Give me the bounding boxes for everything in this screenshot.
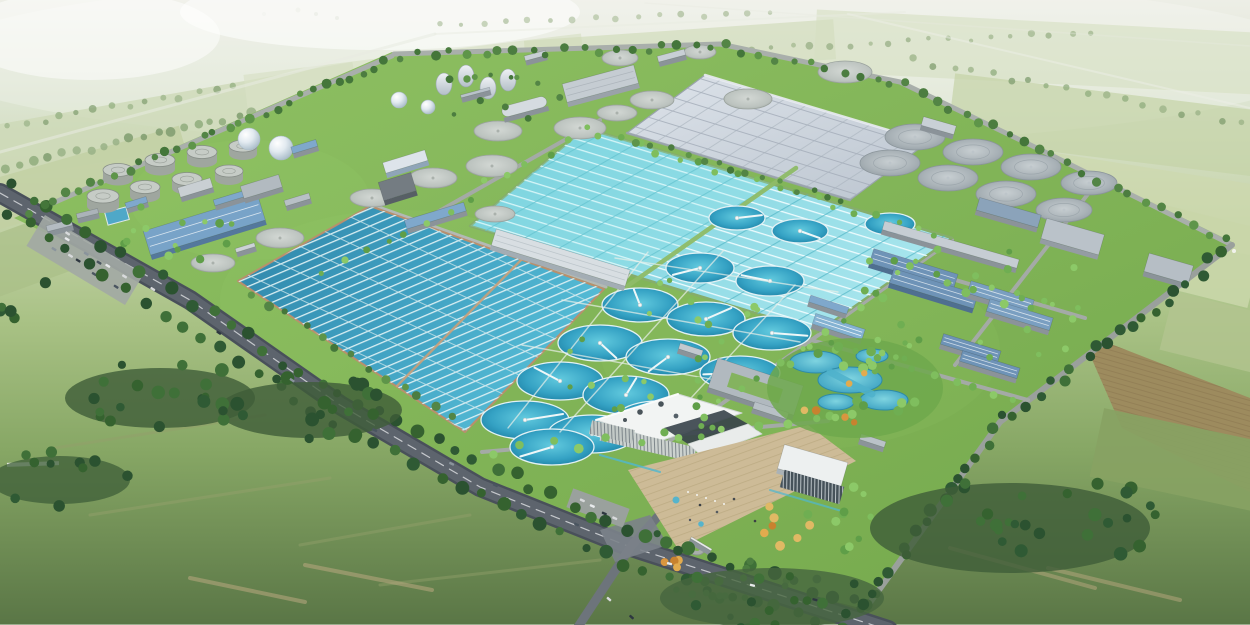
tree — [164, 252, 172, 260]
tree — [857, 304, 865, 312]
tree — [711, 169, 718, 176]
tree — [118, 361, 126, 369]
tree — [856, 536, 862, 542]
tree — [544, 486, 557, 499]
tree — [548, 18, 553, 23]
tree — [431, 402, 440, 411]
tree — [1120, 486, 1132, 498]
tree — [135, 158, 142, 165]
roof-vents — [637, 409, 643, 415]
tree — [723, 11, 729, 17]
tree — [960, 478, 971, 489]
tree — [1004, 265, 1012, 273]
tree — [387, 239, 392, 244]
tree — [455, 481, 469, 495]
tree — [1020, 402, 1030, 412]
tree — [660, 428, 668, 436]
covered-tank-center — [889, 162, 892, 165]
tree — [1035, 145, 1045, 155]
distant-buildings — [314, 12, 318, 16]
tree — [783, 420, 792, 429]
tree — [801, 406, 809, 414]
tree — [1008, 78, 1015, 85]
covered-tank-center — [1063, 209, 1066, 212]
tree — [160, 311, 171, 322]
tree — [1091, 340, 1102, 351]
scene — [0, 0, 1250, 625]
tree — [1064, 364, 1074, 374]
tree — [1181, 280, 1189, 288]
tree — [197, 395, 210, 408]
tree — [910, 397, 919, 406]
tree — [115, 246, 126, 257]
tree — [141, 134, 148, 141]
flat-tank-center — [212, 262, 215, 265]
tree — [524, 17, 530, 23]
tree — [1075, 305, 1081, 311]
tree — [142, 99, 148, 105]
tree — [509, 75, 514, 80]
tree — [560, 43, 569, 52]
tree — [861, 370, 867, 376]
tree — [463, 50, 472, 59]
tree — [431, 51, 441, 61]
tree — [141, 298, 152, 309]
tree — [232, 356, 245, 369]
tree — [1050, 302, 1055, 307]
tree — [548, 152, 555, 159]
storage-tank-top — [145, 154, 175, 167]
tree — [1088, 508, 1101, 521]
tree — [989, 34, 994, 39]
tree — [830, 205, 835, 210]
tree — [647, 393, 654, 400]
tree — [998, 537, 1007, 546]
tree — [622, 375, 629, 382]
tree — [953, 378, 961, 386]
tree — [872, 211, 880, 219]
tree — [450, 446, 459, 455]
tree — [448, 209, 454, 215]
tree — [934, 246, 942, 254]
tree — [593, 14, 599, 20]
tree — [94, 240, 107, 253]
tree — [99, 377, 109, 387]
tree — [988, 119, 998, 129]
tree — [941, 495, 953, 507]
gas-holder-sphere — [421, 100, 435, 114]
tree — [806, 42, 814, 50]
tree — [695, 377, 702, 384]
tree — [618, 134, 625, 141]
tree — [791, 58, 797, 64]
tree — [57, 148, 65, 156]
tree — [264, 301, 274, 311]
tree — [210, 305, 221, 316]
tree — [2, 209, 12, 219]
tree — [801, 346, 806, 351]
tree — [4, 123, 9, 128]
tree — [813, 415, 820, 422]
tree — [124, 133, 133, 142]
tree — [791, 43, 796, 48]
tree — [897, 398, 907, 408]
tree — [446, 75, 454, 83]
tree — [929, 63, 936, 70]
tree — [953, 65, 959, 71]
tree — [1085, 90, 1091, 96]
tree — [16, 161, 23, 168]
tree — [43, 119, 49, 125]
tree — [1152, 308, 1161, 317]
tree — [831, 517, 840, 526]
tree — [215, 363, 229, 377]
tree — [345, 76, 353, 84]
tree — [53, 500, 65, 512]
tree — [407, 457, 420, 470]
clarifier-hub — [523, 418, 527, 422]
tree — [1222, 234, 1230, 242]
clarifier-hub — [770, 331, 774, 335]
flag-poles — [687, 491, 689, 493]
tree — [73, 110, 78, 115]
tree — [790, 596, 799, 605]
tree — [866, 257, 873, 264]
flat-tank-center — [491, 165, 494, 168]
egg-digester — [500, 69, 516, 91]
tree — [944, 106, 952, 114]
tree — [868, 361, 877, 370]
tree — [169, 387, 180, 398]
tree — [673, 563, 681, 571]
tree — [584, 124, 590, 130]
roof-vents — [623, 418, 627, 422]
tree — [1139, 102, 1146, 109]
tree — [569, 17, 576, 24]
tree — [978, 339, 983, 344]
tree — [601, 433, 609, 441]
aerial-view-wastewater-plant — [0, 0, 1250, 625]
tree — [828, 340, 834, 346]
tree — [859, 401, 868, 410]
tree — [570, 502, 581, 513]
tree — [885, 41, 891, 47]
tree — [747, 597, 756, 606]
tree — [860, 491, 866, 497]
tree — [931, 371, 939, 379]
tree — [452, 112, 457, 117]
tree — [88, 393, 99, 404]
tree — [931, 233, 937, 239]
tree — [858, 599, 870, 611]
tree — [1011, 520, 1019, 528]
tree — [1034, 528, 1045, 539]
tree — [174, 246, 180, 252]
tree — [717, 160, 723, 166]
tree — [305, 413, 319, 427]
tree — [319, 271, 324, 276]
tree — [964, 111, 971, 118]
clarifier-hub — [698, 266, 702, 270]
tree — [503, 18, 509, 24]
tree — [1102, 337, 1114, 349]
tree — [565, 136, 572, 143]
tree — [960, 464, 970, 474]
tree — [132, 380, 143, 391]
tree — [803, 510, 812, 519]
covered-tank-center — [1030, 166, 1033, 169]
tree — [839, 361, 848, 370]
tree — [272, 375, 281, 384]
tree — [695, 355, 702, 362]
tree — [661, 558, 669, 566]
tree — [88, 147, 96, 155]
tree — [229, 221, 235, 227]
tree — [1063, 489, 1072, 498]
flat-tank-center — [371, 197, 374, 200]
tree — [215, 219, 224, 228]
tree — [89, 455, 101, 467]
flag-poles — [714, 500, 716, 502]
tree — [219, 118, 226, 125]
tree — [567, 349, 573, 355]
tree — [632, 139, 640, 147]
tree — [886, 81, 893, 88]
tree — [556, 94, 563, 101]
tree — [202, 132, 209, 139]
tree — [489, 450, 497, 458]
tree — [769, 45, 773, 49]
tree — [1028, 305, 1035, 312]
tree — [226, 124, 235, 133]
clarifier-hub — [798, 229, 802, 233]
tree — [186, 300, 199, 313]
tree — [502, 103, 509, 110]
tree — [890, 257, 898, 265]
tree — [906, 262, 914, 270]
tree — [41, 201, 50, 210]
tree — [492, 463, 505, 476]
tree — [968, 67, 974, 73]
tree — [1167, 285, 1179, 297]
clarifier-hub — [735, 216, 739, 220]
tree — [165, 281, 178, 294]
covered-tank-center — [1005, 193, 1008, 196]
tree — [197, 88, 203, 94]
tree — [1165, 299, 1174, 308]
tree — [424, 220, 431, 227]
gas-holder-sphere — [238, 128, 260, 150]
tree — [754, 176, 760, 182]
tree — [765, 606, 774, 615]
tree — [1018, 492, 1027, 501]
tree — [1136, 313, 1145, 322]
storage-tank-top — [130, 181, 160, 194]
tree — [658, 41, 665, 48]
tree — [350, 378, 363, 391]
tree — [826, 43, 833, 50]
tree — [755, 307, 761, 313]
tree — [848, 44, 854, 50]
tree — [1202, 252, 1213, 263]
tree — [445, 47, 451, 53]
clarifier-hub — [558, 379, 562, 383]
tree — [1206, 232, 1213, 239]
tree — [411, 424, 425, 438]
tree — [214, 341, 226, 353]
tree — [434, 433, 445, 444]
tree — [944, 279, 951, 286]
people — [733, 498, 736, 501]
tree — [657, 12, 662, 17]
tree — [230, 397, 244, 411]
tree — [278, 361, 287, 370]
tree — [257, 346, 267, 356]
tree — [1063, 84, 1069, 90]
tree — [727, 167, 734, 174]
tree — [869, 41, 873, 45]
tree — [1015, 544, 1028, 557]
tree — [6, 179, 16, 189]
tree — [1151, 510, 1160, 519]
tree — [878, 293, 887, 302]
roof-vents — [674, 414, 679, 419]
tree — [681, 541, 695, 555]
tree — [702, 354, 708, 360]
tree — [657, 280, 663, 286]
tree — [739, 385, 746, 392]
tree — [897, 321, 905, 329]
tree — [872, 290, 879, 297]
tree — [402, 384, 409, 391]
tree — [807, 344, 813, 350]
tree — [531, 47, 538, 54]
tree — [1041, 298, 1047, 304]
tree — [994, 526, 1003, 535]
tree — [585, 512, 596, 523]
flat-tank-center — [699, 51, 702, 54]
tree — [29, 458, 39, 468]
tree — [1178, 111, 1185, 118]
tree — [363, 246, 370, 253]
tree — [397, 56, 404, 63]
tree — [78, 463, 87, 472]
tree — [856, 73, 864, 81]
tree — [838, 198, 844, 204]
tree — [481, 177, 487, 183]
tree — [55, 112, 62, 119]
pond-water — [818, 394, 854, 410]
clarifier-hub — [638, 303, 642, 307]
tree — [735, 170, 742, 177]
tree — [255, 369, 264, 378]
tree — [96, 269, 109, 282]
flag-poles — [723, 503, 725, 505]
tree — [30, 197, 39, 206]
tree — [595, 49, 603, 57]
tree — [100, 143, 107, 150]
tree — [477, 97, 484, 104]
tree — [1019, 137, 1029, 147]
tree — [1046, 376, 1055, 385]
tree — [49, 197, 57, 205]
tree — [667, 278, 672, 283]
tree — [909, 54, 916, 61]
tree — [617, 559, 630, 572]
tree — [582, 544, 590, 552]
tree — [612, 406, 618, 412]
tree — [846, 380, 853, 387]
tree — [687, 298, 694, 305]
tree — [223, 240, 231, 248]
tree — [812, 406, 821, 415]
tree — [721, 39, 730, 48]
tree — [901, 355, 907, 361]
covered-tank-center — [914, 136, 917, 139]
tree — [612, 16, 619, 23]
flat-tank-center — [432, 177, 435, 180]
tree — [177, 321, 188, 332]
tree — [322, 79, 332, 89]
tree — [1103, 91, 1110, 98]
tree — [523, 484, 533, 494]
tree — [365, 366, 372, 373]
tree — [137, 203, 144, 210]
tree — [26, 217, 36, 227]
tree — [75, 187, 83, 195]
tree — [142, 225, 149, 232]
tree — [765, 503, 773, 511]
covered-tank-center — [1088, 182, 1091, 185]
tree — [1239, 119, 1245, 125]
tree — [158, 270, 168, 280]
tree — [716, 399, 721, 404]
tree — [1060, 375, 1071, 386]
tree — [824, 194, 831, 201]
clarifier-hub — [666, 355, 670, 359]
tree — [218, 414, 230, 426]
tree — [660, 536, 672, 548]
tree — [348, 351, 355, 358]
tree — [834, 342, 843, 351]
tree — [483, 51, 491, 59]
tree — [672, 40, 682, 50]
flat-tank-center — [579, 127, 582, 130]
tree — [753, 375, 759, 381]
tree — [969, 286, 977, 294]
tree — [654, 530, 661, 537]
tree — [787, 360, 795, 368]
tree — [987, 423, 998, 434]
tree — [673, 546, 683, 556]
tree — [468, 197, 474, 203]
tree — [131, 228, 136, 233]
tree — [89, 105, 97, 113]
tree — [986, 354, 993, 361]
tree — [897, 220, 902, 225]
tree — [744, 311, 750, 317]
tree — [177, 360, 188, 371]
tree — [617, 404, 625, 412]
tree — [613, 46, 620, 53]
tree — [166, 127, 176, 137]
tree — [61, 188, 71, 198]
tree — [1, 164, 10, 173]
tree — [1007, 131, 1013, 137]
tree — [1078, 170, 1085, 177]
tree — [777, 359, 785, 367]
tree — [73, 146, 81, 154]
